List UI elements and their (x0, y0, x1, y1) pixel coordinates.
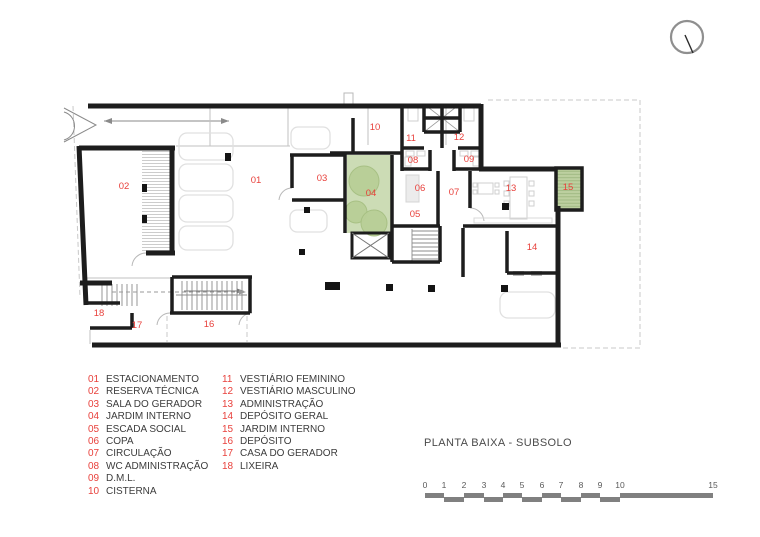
legend-item-number: 10 (88, 486, 103, 498)
room-label-18: 18 (94, 308, 105, 319)
legend-item-number: 05 (88, 424, 103, 436)
scale-tick-10: 10 (615, 480, 624, 490)
legend-item-number: 11 (222, 374, 237, 386)
legend-item-number: 12 (222, 386, 237, 398)
scale-segment (542, 493, 561, 498)
legend-item-18: 18LIXEIRA (222, 461, 356, 473)
legend-item-label: DEPÓSITO (240, 436, 292, 448)
legend-item-16: 16DEPÓSITO (222, 436, 356, 448)
legend-item-12: 12VESTIÁRIO MASCULINO (222, 386, 356, 398)
room-label-08: 08 (408, 155, 419, 166)
floor-plan-page: 010203040506070809101112131415161718 01E… (0, 0, 760, 537)
scale-tick-0: 0 (423, 480, 428, 490)
elevator (352, 233, 389, 258)
legend-item-label: RESERVA TÉCNICA (106, 386, 199, 398)
scale-segment (561, 497, 581, 502)
room-label-16: 16 (204, 319, 215, 330)
legend-item-label: ESCADA SOCIAL (106, 424, 186, 436)
legend-item-01: 01ESTACIONAMENTO (88, 374, 222, 386)
legend-item-label: LIXEIRA (240, 461, 278, 473)
legend-column: 11VESTIÁRIO FEMININO12VESTIÁRIO MASCULIN… (222, 374, 356, 498)
legend-item-label: CISTERNA (106, 486, 157, 498)
legend-item-number: 03 (88, 399, 103, 411)
room-label-09: 09 (464, 154, 475, 165)
legend-item-label: ESTACIONAMENTO (106, 374, 199, 386)
legend-item-11: 11VESTIÁRIO FEMININO (222, 374, 356, 386)
scale-tick-6: 6 (540, 480, 545, 490)
scale-tick-15: 15 (708, 480, 717, 490)
legend-item-number: 01 (88, 374, 103, 386)
scale-tick-3: 3 (482, 480, 487, 490)
room-label-07: 07 (449, 187, 460, 198)
room-label-12: 12 (454, 132, 465, 143)
room-label-01: 01 (251, 175, 262, 186)
legend-item-number: 08 (88, 461, 103, 473)
scale-tick-7: 7 (559, 480, 564, 490)
ramp-marks (64, 108, 229, 142)
legend: 01ESTACIONAMENTO02RESERVA TÉCNICA03SALA … (88, 374, 356, 498)
legend-item-number: 14 (222, 411, 237, 423)
legend-item-number: 18 (222, 461, 237, 473)
legend-item-number: 04 (88, 411, 103, 423)
legend-item-number: 09 (88, 473, 103, 485)
scale-segment (522, 497, 542, 502)
legend-item-label: WC ADMINISTRAÇÃO (106, 461, 208, 473)
legend-item-label: JARDIM INTERNO (240, 424, 325, 436)
scale-segment (464, 493, 484, 498)
legend-item-number: 17 (222, 448, 237, 460)
legend-item-label: D.M.L. (106, 473, 135, 485)
legend-item-03: 03SALA DO GERADOR (88, 399, 222, 411)
legend-item-number: 16 (222, 436, 237, 448)
legend-item-17: 17CASA DO GERADOR (222, 448, 356, 460)
legend-item-14: 14DEPÓSITO GERAL (222, 411, 356, 423)
legend-item-label: COPA (106, 436, 134, 448)
scale-segment (600, 497, 620, 502)
legend-item-number: 06 (88, 436, 103, 448)
legend-item-number: 15 (222, 424, 237, 436)
scale-bar: 01234567891015 (424, 480, 724, 504)
north-arrow-icon (671, 21, 703, 53)
scale-tick-2: 2 (462, 480, 467, 490)
legend-item-04: 04JARDIM INTERNO (88, 411, 222, 423)
legend-item-number: 02 (88, 386, 103, 398)
legend-item-10: 10CISTERNA (88, 486, 222, 498)
legend-item-number: 13 (222, 399, 237, 411)
legend-item-15: 15JARDIM INTERNO (222, 424, 356, 436)
legend-item-08: 08WC ADMINISTRAÇÃO (88, 461, 222, 473)
legend-item-label: SALA DO GERADOR (106, 399, 202, 411)
legend-item-02: 02RESERVA TÉCNICA (88, 386, 222, 398)
reserva-tecnica-hatch (142, 150, 170, 253)
scale-segment (503, 493, 522, 498)
legend-item-label: ADMINISTRAÇÃO (240, 399, 323, 411)
room-label-13: 13 (506, 183, 517, 194)
legend-item-05: 05ESCADA SOCIAL (88, 424, 222, 436)
room-label-17: 17 (132, 320, 143, 331)
legend-item-label: VESTIÁRIO FEMININO (240, 374, 345, 386)
legend-column: 01ESTACIONAMENTO02RESERVA TÉCNICA03SALA … (88, 374, 222, 498)
scale-segment (620, 493, 713, 498)
scale-tick-4: 4 (501, 480, 506, 490)
scale-tick-1: 1 (442, 480, 447, 490)
scale-tick-5: 5 (520, 480, 525, 490)
room-label-06: 06 (415, 183, 426, 194)
legend-item-07: 07CIRCULAÇÃO (88, 448, 222, 460)
legend-item-number: 07 (88, 448, 103, 460)
room-label-15: 15 (563, 182, 574, 193)
legend-item-06: 06COPA (88, 436, 222, 448)
scale-segment (425, 493, 444, 498)
legend-item-label: DEPÓSITO GERAL (240, 411, 328, 423)
legend-item-label: CASA DO GERADOR (240, 448, 338, 460)
room-label-10: 10 (370, 122, 381, 133)
legend-item-13: 13ADMINISTRAÇÃO (222, 399, 356, 411)
room-label-03: 03 (317, 173, 328, 184)
drawing-title: PLANTA BAIXA - SUBSOLO (424, 437, 572, 449)
scale-segment (484, 497, 503, 502)
legend-item-label: VESTIÁRIO MASCULINO (240, 386, 356, 398)
legend-item-label: JARDIM INTERNO (106, 411, 191, 423)
legend-item-09: 09D.M.L. (88, 473, 222, 485)
room-label-04: 04 (366, 188, 377, 199)
scale-segment (444, 497, 464, 502)
room-label-14: 14 (527, 242, 538, 253)
room-label-05: 05 (410, 209, 421, 220)
room-label-11: 11 (406, 133, 416, 144)
scale-tick-9: 9 (598, 480, 603, 490)
scale-tick-8: 8 (579, 480, 584, 490)
legend-item-label: CIRCULAÇÃO (106, 448, 172, 460)
scale-segment (581, 493, 600, 498)
room-label-02: 02 (119, 181, 130, 192)
